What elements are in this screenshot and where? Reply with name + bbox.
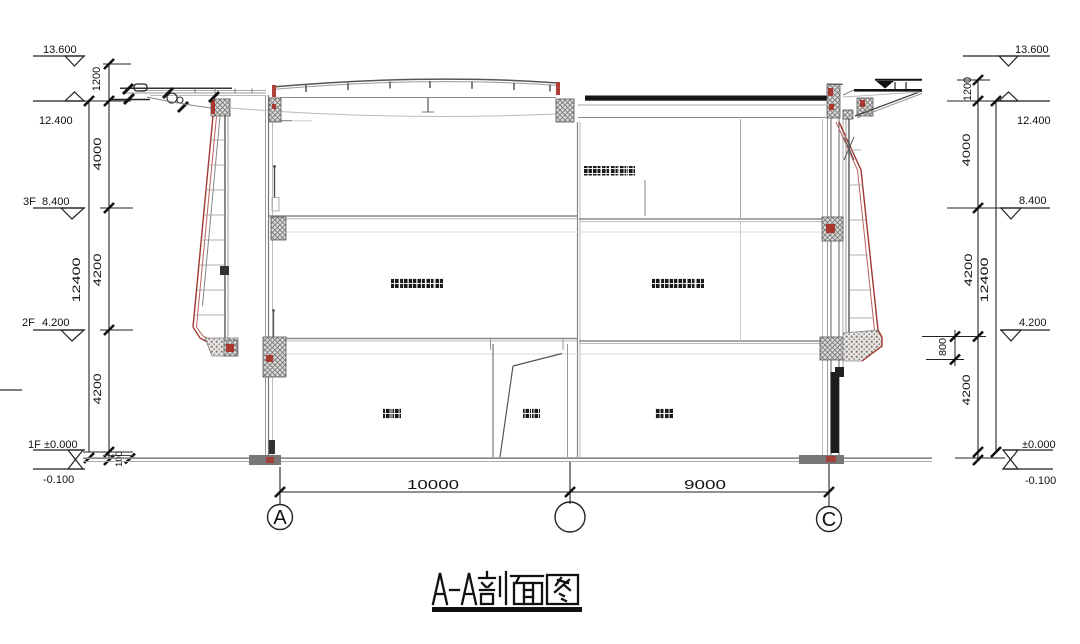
svg-text:13.600: 13.600: [1015, 44, 1049, 56]
svg-text:C: C: [822, 509, 836, 531]
svg-text:3F: 3F: [23, 196, 36, 208]
svg-text:1F: 1F: [28, 439, 41, 451]
svg-text:9000: 9000: [684, 478, 726, 492]
svg-text:-0.100: -0.100: [43, 474, 74, 486]
svg-text:±0.000: ±0.000: [44, 439, 78, 451]
svg-text:4000: 4000: [92, 138, 104, 171]
svg-text:4200: 4200: [961, 375, 973, 406]
svg-text:12400: 12400: [71, 258, 83, 303]
svg-text:13.600: 13.600: [43, 44, 77, 56]
svg-text:4200: 4200: [963, 254, 975, 287]
svg-text:4200: 4200: [92, 254, 104, 287]
svg-text:8.400: 8.400: [1019, 195, 1047, 207]
svg-text:10000: 10000: [407, 478, 459, 492]
svg-text:12400: 12400: [979, 258, 991, 303]
svg-text:-0.100: -0.100: [1025, 475, 1056, 487]
svg-text:12.400: 12.400: [39, 115, 73, 127]
svg-text:800: 800: [938, 338, 949, 356]
svg-text:4200: 4200: [92, 374, 104, 405]
svg-text:4.200: 4.200: [1019, 317, 1047, 329]
svg-text:A: A: [273, 507, 287, 529]
svg-text:1200: 1200: [962, 77, 974, 101]
svg-text:8.400: 8.400: [42, 196, 70, 208]
svg-text:2F: 2F: [22, 317, 35, 329]
svg-text:4.200: 4.200: [42, 317, 70, 329]
svg-text:4000: 4000: [961, 134, 973, 167]
svg-text:1200: 1200: [91, 67, 103, 91]
svg-text:12.400: 12.400: [1017, 115, 1051, 127]
svg-text:±0.000: ±0.000: [1022, 439, 1056, 451]
